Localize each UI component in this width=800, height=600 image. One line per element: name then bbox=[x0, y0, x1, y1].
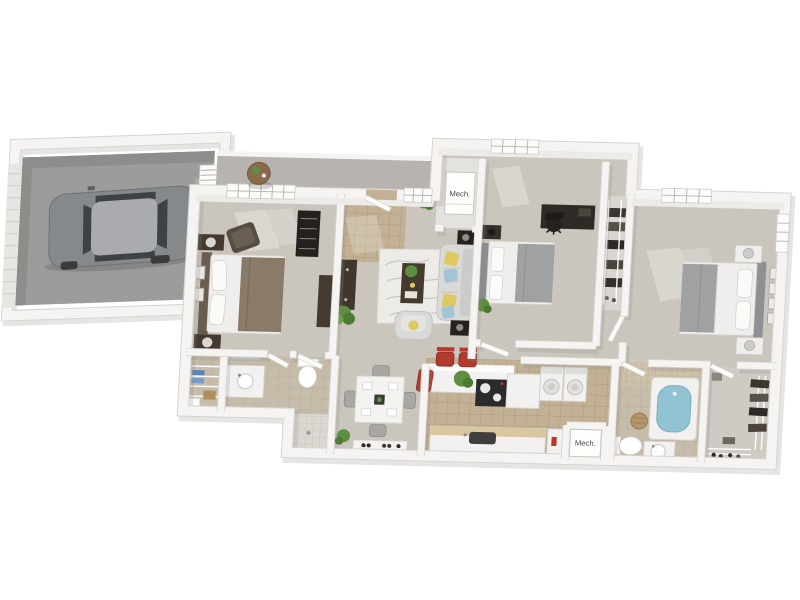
floor-plan-3d-render: Mech. Mech. bbox=[0, 0, 800, 600]
porch-table-top bbox=[247, 162, 271, 185]
kitchen-cooktop bbox=[475, 379, 507, 407]
car-rear-window bbox=[157, 199, 168, 250]
bedroom2-bed bbox=[477, 241, 556, 305]
dryer bbox=[563, 367, 588, 402]
master-east-window bbox=[775, 214, 789, 252]
floor-plan-canvas: Mech. Mech. bbox=[0, 0, 800, 600]
bedroom1-bed bbox=[197, 252, 285, 336]
bedroom2-window bbox=[491, 139, 539, 154]
car-wheel-front bbox=[61, 261, 78, 270]
mech-label-bottom: Mech. bbox=[575, 439, 597, 448]
washer bbox=[539, 367, 564, 402]
master-nightstand-bottom bbox=[736, 337, 764, 355]
living-coffee-table bbox=[400, 263, 425, 304]
master-window bbox=[662, 188, 712, 203]
entry-window bbox=[404, 188, 433, 203]
car-roof bbox=[91, 198, 158, 256]
bathtub bbox=[649, 377, 700, 440]
apartment-unit: Mech. Mech. bbox=[180, 132, 793, 468]
mech-label-top: Mech. bbox=[449, 189, 471, 198]
car-wheel-rear bbox=[151, 255, 170, 264]
bathroom2-basket bbox=[631, 413, 648, 429]
mech-closet-top: Mech. bbox=[444, 172, 475, 215]
car-mirror bbox=[88, 186, 95, 190]
mech-closet-bottom: Mech. bbox=[569, 429, 601, 457]
master-bed bbox=[679, 260, 767, 338]
master-nightstand-top bbox=[735, 245, 763, 263]
kitchen-counter-east bbox=[506, 374, 541, 409]
living-end-table-bottom bbox=[450, 320, 469, 335]
living-armchair bbox=[394, 311, 433, 340]
dining-table bbox=[354, 376, 404, 423]
mech1-face-line bbox=[445, 204, 474, 205]
bedroom1-bookshelf bbox=[296, 210, 321, 257]
living-end-table-top bbox=[457, 230, 474, 244]
